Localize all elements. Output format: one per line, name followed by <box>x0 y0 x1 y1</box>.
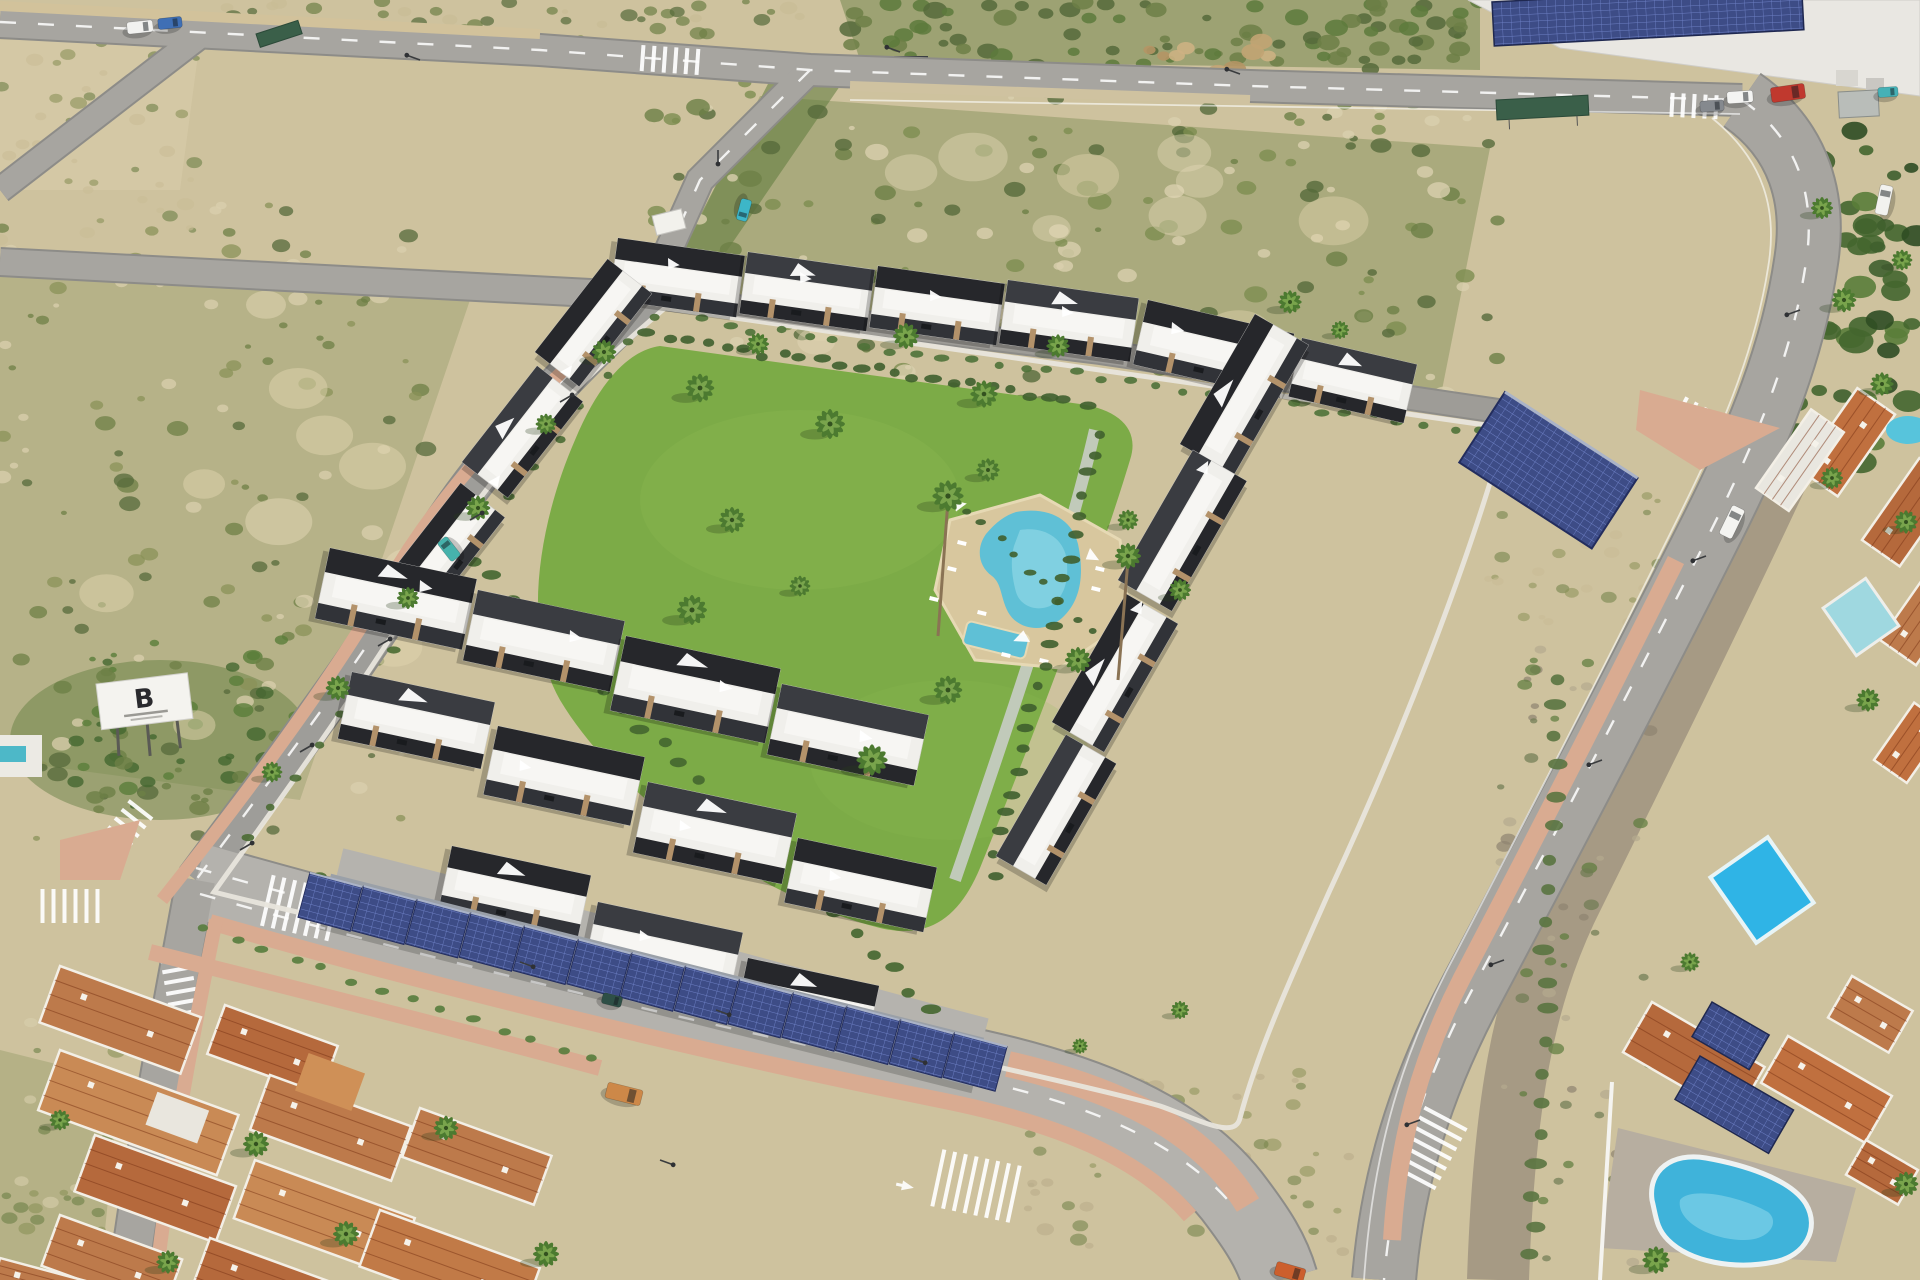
scrub-patch <box>1884 328 1908 345</box>
scrub-patch <box>1563 1161 1574 1168</box>
scrub-patch <box>1326 252 1347 267</box>
scrub-patch <box>1033 215 1071 242</box>
scrub-patch <box>94 736 102 742</box>
scrub-patch <box>1463 115 1472 121</box>
scrub-patch <box>69 736 84 747</box>
hedge <box>1039 579 1048 585</box>
scrub-patch <box>93 805 104 813</box>
hedge <box>1017 724 1034 732</box>
hedge <box>874 363 885 371</box>
hedge <box>650 314 660 321</box>
scrub-patch <box>101 668 113 676</box>
scrub-patch <box>1453 22 1467 32</box>
hedge <box>1314 409 1329 416</box>
hedge <box>242 834 255 841</box>
scrub-patch <box>1524 753 1538 763</box>
scrub-patch <box>2 151 16 161</box>
scrub-patch <box>222 244 242 258</box>
scrub-patch <box>183 469 225 498</box>
billboard-logo-letter: B <box>133 683 156 715</box>
scrub-patch <box>1610 530 1623 539</box>
scrub-patch <box>1028 136 1037 142</box>
scrub-patch <box>1343 130 1355 138</box>
hedge <box>435 1006 445 1013</box>
scrub-patch <box>204 300 218 310</box>
scrub-patch <box>745 91 756 99</box>
scrub-patch <box>295 595 314 608</box>
scrub-patch <box>1859 145 1873 155</box>
scrub-patch <box>1532 567 1544 576</box>
scrub-patch <box>1371 138 1392 153</box>
scrub-patch <box>150 640 159 647</box>
scrub-patch <box>1143 46 1155 55</box>
scrub-patch <box>1426 16 1446 30</box>
scrub-patch <box>994 10 1017 26</box>
scrub-patch <box>350 782 367 794</box>
scrub-patch <box>855 16 872 28</box>
scrub-patch <box>875 185 896 200</box>
scrub-patch <box>1286 1099 1301 1110</box>
scrub-patch <box>1518 613 1530 621</box>
scrub-patch <box>1149 196 1207 237</box>
scrub-patch <box>14 1176 28 1186</box>
hedge <box>586 1054 597 1061</box>
scrub-patch <box>691 1 706 12</box>
scrub-patch <box>1024 1206 1032 1212</box>
scrub-patch <box>1204 48 1221 60</box>
scrub-patch <box>699 28 715 39</box>
scrub-patch <box>442 14 457 25</box>
scrub-patch <box>1254 1139 1269 1149</box>
hedge <box>630 725 650 735</box>
scrub-patch <box>1095 227 1101 232</box>
scrub-patch <box>1032 148 1047 158</box>
hedge <box>1076 491 1087 499</box>
scrub-patch <box>1200 103 1217 115</box>
scrub-patch <box>53 303 59 307</box>
scrub-patch <box>256 687 274 699</box>
scrub-patch <box>1870 242 1886 253</box>
scrub-patch <box>1409 36 1424 46</box>
hedge <box>466 1015 481 1022</box>
scrub-patch <box>1231 38 1243 47</box>
scrub-patch <box>1525 664 1541 675</box>
scrub-patch <box>296 492 308 501</box>
scrub-patch <box>1082 13 1097 24</box>
scrub-patch <box>1313 1152 1319 1157</box>
scrub-patch <box>1189 1088 1199 1095</box>
scrub-patch <box>271 560 279 566</box>
scrub-patch <box>944 205 960 216</box>
scrub-patch <box>1887 171 1901 181</box>
scrub-patch <box>247 651 260 660</box>
scrub-patch <box>60 49 75 60</box>
scrub-patch <box>315 300 322 305</box>
scrub-patch <box>1298 141 1310 149</box>
hedge <box>1040 662 1053 670</box>
hedge <box>670 758 687 768</box>
scrub-patch <box>1560 933 1569 940</box>
scrub-patch <box>1344 1153 1355 1160</box>
scrub-patch <box>9 365 17 370</box>
scrub-patch <box>409 392 422 401</box>
scrub-patch <box>203 596 220 608</box>
scrub-patch <box>89 657 96 662</box>
scrub-patch <box>1030 1189 1040 1196</box>
scrub-patch <box>1545 957 1557 965</box>
hedge <box>254 946 268 953</box>
scrub-patch <box>1354 309 1373 322</box>
scrub-patch <box>1503 817 1516 826</box>
scrub-patch <box>339 443 406 490</box>
scrub-patch <box>233 422 245 431</box>
scrub-patch <box>1288 1176 1302 1186</box>
scrub-patch <box>149 734 157 739</box>
scrub-patch <box>1143 197 1153 204</box>
scrub-patch <box>1877 219 1894 231</box>
scrub-patch <box>60 1190 69 1196</box>
hedge <box>1095 431 1105 439</box>
scrub-patch <box>644 6 657 15</box>
scrub-patch <box>1033 1147 1046 1156</box>
hedge <box>992 827 1009 835</box>
scrub-patch <box>1852 192 1880 211</box>
kiosk <box>1836 70 1858 86</box>
scrub-patch <box>1057 154 1119 197</box>
scrub-patch <box>1367 269 1377 276</box>
scrub-patch <box>177 198 194 210</box>
scrub-patch <box>1169 50 1185 61</box>
scrub-patch <box>18 414 28 421</box>
scrub-patch <box>186 502 202 513</box>
scrub-patch <box>29 1190 39 1197</box>
scrub-patch <box>1317 35 1339 51</box>
scrub-patch <box>1554 1178 1564 1185</box>
scrub-patch <box>128 554 145 566</box>
scrub-patch <box>1538 1197 1549 1204</box>
scrub-patch <box>721 219 729 225</box>
scrub-patch <box>1256 1074 1265 1080</box>
scrub-patch <box>808 105 828 119</box>
scrub-patch <box>82 720 92 727</box>
scrub-patch <box>956 44 971 55</box>
scrub-patch <box>909 20 928 33</box>
scrub-patch <box>1369 41 1390 55</box>
scrub-patch <box>690 14 702 22</box>
scrub-patch <box>1517 680 1532 690</box>
scrub-patch <box>1604 547 1620 558</box>
hedge <box>867 950 880 960</box>
scrub-patch <box>47 767 68 781</box>
scrub-patch <box>727 174 738 182</box>
scrub-patch <box>288 292 307 305</box>
hedge <box>884 349 896 356</box>
scrub-patch <box>1425 116 1440 127</box>
hedge <box>948 379 961 387</box>
scrub-patch <box>361 296 370 303</box>
scrub-patch <box>942 8 954 16</box>
scrub-patch <box>396 815 405 822</box>
scrub-patch <box>1317 52 1331 62</box>
hedge <box>1005 385 1015 393</box>
scrub-patch <box>871 214 886 224</box>
scrub-patch <box>1322 114 1332 121</box>
scrub-patch <box>1539 615 1546 620</box>
hedge <box>1545 820 1563 831</box>
scrub-patch <box>650 23 666 34</box>
hedge <box>1537 1003 1558 1014</box>
scrub-patch <box>416 442 437 457</box>
hedge <box>290 775 302 782</box>
hedge <box>910 351 923 358</box>
scrub-patch <box>676 16 690 26</box>
scrub-patch <box>1292 1078 1299 1083</box>
scrub-patch <box>1529 583 1537 589</box>
scrub-patch <box>1157 134 1211 172</box>
scrub-patch <box>1070 1234 1087 1246</box>
tiny-pool <box>0 746 26 762</box>
scrub-patch <box>1594 1112 1604 1119</box>
scrub-patch <box>1399 22 1419 36</box>
hedge <box>1124 377 1137 384</box>
scrub-patch <box>247 727 266 741</box>
scrub-patch <box>29 606 47 618</box>
scrub-patch <box>1202 15 1211 21</box>
scrub-patch <box>1337 1247 1350 1256</box>
scrub-patch <box>843 39 859 50</box>
scrub-patch <box>1157 51 1170 60</box>
scrub-patch <box>1080 1202 1094 1212</box>
scrub-patch <box>140 777 155 788</box>
scrub-patch <box>1106 46 1120 56</box>
hedge <box>482 570 501 580</box>
scrub-patch <box>1542 988 1556 997</box>
scrub-patch <box>1085 1243 1094 1249</box>
scrub-patch <box>645 109 664 123</box>
scrub-patch <box>1449 42 1470 57</box>
scrub-patch <box>131 167 139 173</box>
scrub-patch <box>30 1215 44 1225</box>
hedge <box>997 808 1014 816</box>
hedge <box>703 339 714 347</box>
scrub-patch <box>26 54 43 66</box>
scrub-patch <box>765 199 781 210</box>
scrub-patch <box>620 9 637 21</box>
aerial-scene: B <box>0 0 1920 1280</box>
scrub-patch <box>903 126 920 138</box>
scrub-patch <box>169 661 181 670</box>
scrub-patch <box>1037 1223 1054 1235</box>
scrub-patch <box>1221 220 1243 235</box>
scrub-patch <box>1294 118 1305 126</box>
hedge <box>693 775 705 785</box>
scrub-patch <box>186 225 194 230</box>
scrub-patch <box>316 336 323 341</box>
scrub-patch <box>28 314 34 318</box>
scrub-patch <box>1285 9 1308 25</box>
scrub-patch <box>1501 1085 1507 1090</box>
scrub-patch <box>134 655 145 662</box>
scrub-patch <box>1552 549 1565 558</box>
scrub-patch <box>114 450 123 456</box>
scrub-patch <box>1579 914 1589 921</box>
hedge <box>905 374 918 382</box>
hedge <box>1089 628 1097 634</box>
scrub-patch <box>1345 142 1356 149</box>
scrub-patch <box>1094 1173 1101 1178</box>
scrub-patch <box>115 757 133 770</box>
scrub-patch <box>686 99 710 116</box>
hedge <box>1539 1037 1552 1048</box>
scrub-patch <box>262 357 273 365</box>
scrub-patch <box>1372 125 1386 135</box>
scrub-patch <box>1412 144 1431 157</box>
scrub-patch <box>1904 163 1918 173</box>
scrub-patch <box>187 177 194 182</box>
scrub-patch <box>754 14 771 26</box>
scrub-patch <box>1064 128 1073 135</box>
hedge <box>858 343 870 350</box>
hedge <box>1055 395 1070 403</box>
scrub-patch <box>1482 313 1493 321</box>
hedge <box>975 519 986 525</box>
scrub-patch <box>64 1195 72 1201</box>
hedge <box>805 333 815 340</box>
scrub-patch <box>22 448 29 453</box>
hedge <box>1070 368 1084 375</box>
hedge <box>724 322 738 329</box>
scrub-patch <box>80 227 95 238</box>
hedge <box>1535 1069 1548 1080</box>
scrub-patch <box>637 16 646 22</box>
scrub-patch <box>1633 818 1648 828</box>
hedge <box>525 1036 536 1043</box>
scrub-patch <box>1596 856 1604 861</box>
scrub-patch <box>224 689 231 694</box>
scrub-patch <box>1411 5 1429 17</box>
scrub-patch <box>1530 718 1537 723</box>
hedge <box>680 336 694 344</box>
hedge <box>1080 402 1097 410</box>
scrub-patch <box>1632 835 1640 841</box>
hedge <box>1532 945 1554 956</box>
scrub-patch <box>159 146 175 157</box>
scrub-patch <box>114 474 134 488</box>
scrub-patch <box>1642 492 1653 500</box>
scrub-patch <box>940 23 952 32</box>
scrub-patch <box>252 561 268 572</box>
scrub-patch <box>905 365 911 370</box>
scrub-patch <box>977 228 993 239</box>
scrub-patch <box>368 753 375 758</box>
scrub-patch <box>1259 150 1276 162</box>
hedge <box>266 804 275 811</box>
scrub-patch <box>201 798 209 803</box>
scrub-patch <box>266 2 278 10</box>
scrub-patch <box>1195 48 1204 54</box>
hedge <box>1055 599 1062 605</box>
hedge <box>1538 978 1557 989</box>
scrub-patch <box>1359 291 1365 295</box>
scrub-patch <box>33 1048 41 1053</box>
scrub-patch <box>256 658 274 671</box>
hedge <box>292 957 304 964</box>
scrub-patch <box>1547 936 1555 942</box>
scrub-patch <box>191 794 201 801</box>
scrub-patch <box>670 7 685 17</box>
scrub-patch <box>176 758 185 764</box>
scrub-patch <box>78 763 90 771</box>
scrub-patch <box>1570 686 1577 691</box>
scrub-patch <box>1392 56 1406 65</box>
scrub-patch <box>162 211 178 222</box>
scrub-patch <box>1601 592 1617 603</box>
hedge <box>1022 393 1036 401</box>
scrub-patch <box>161 743 179 756</box>
scrub-patch <box>907 228 927 242</box>
scrub-patch <box>175 768 182 773</box>
scrub-patch <box>1019 163 1034 173</box>
hedge <box>387 646 401 653</box>
scrub-patch <box>1565 588 1579 598</box>
scrub-patch <box>10 463 18 469</box>
scrub-patch <box>1068 48 1080 56</box>
hedge <box>1526 1222 1545 1233</box>
hedge <box>832 362 848 370</box>
scrub-patch <box>62 606 73 614</box>
hedge <box>885 962 904 972</box>
hedge <box>1539 917 1552 928</box>
scrub-patch <box>795 13 805 20</box>
scrub-patch <box>739 171 762 187</box>
scrub-patch <box>1639 974 1649 981</box>
scrub-patch <box>1090 1163 1097 1168</box>
scrub-patch <box>1022 209 1029 214</box>
scrub-patch <box>1113 14 1126 23</box>
scrub-patch <box>13 1202 28 1213</box>
hedge <box>1548 759 1567 770</box>
scrub-patch <box>1041 1178 1053 1186</box>
hedge <box>375 988 389 995</box>
scrub-patch <box>1497 511 1508 519</box>
scrub-patch <box>1591 930 1600 936</box>
scrub-patch <box>1285 159 1296 167</box>
hedge <box>1041 366 1052 373</box>
scrub-patch <box>1883 271 1908 289</box>
scrub-patch <box>430 7 443 16</box>
hedge <box>1063 556 1081 564</box>
hedge <box>659 738 672 748</box>
scrub-patch <box>92 1208 105 1217</box>
scrub-patch <box>75 624 89 634</box>
scrub-patch <box>16 140 30 150</box>
scrub-patch <box>761 141 780 154</box>
scrub-patch <box>1237 181 1257 195</box>
scrub-patch <box>1417 166 1433 178</box>
scrub-patch <box>155 182 164 188</box>
hedge <box>1546 792 1566 803</box>
scrub-patch <box>1866 310 1894 330</box>
scrub-patch <box>99 70 107 76</box>
scrub-patch <box>1877 343 1900 359</box>
hedge <box>791 353 805 361</box>
scrub-patch <box>296 416 353 456</box>
scrub-patch <box>1246 0 1263 12</box>
scrub-patch <box>53 60 62 66</box>
scrub-patch <box>398 7 412 16</box>
scrub-patch <box>1382 329 1395 338</box>
scrub-patch <box>780 2 798 14</box>
